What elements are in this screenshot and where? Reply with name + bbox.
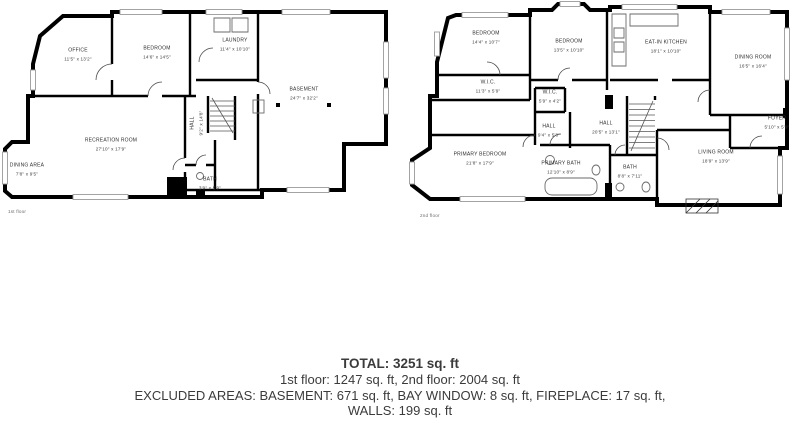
room-label-dining-area: DINING AREA 7'8" x 9'5" (10, 163, 44, 178)
room-dims: 16'5" x 16'4" (735, 62, 772, 69)
floor1-window-4 (384, 42, 389, 78)
room-name: FOYER (764, 116, 789, 124)
floor-areas-text: 1st floor: 1247 sq. ft, 2nd floor: 2004 … (0, 372, 800, 388)
room-label-hall-f1: HALL 9'2" x 14'8" (190, 110, 205, 135)
floor2-outer-walls (412, 4, 787, 205)
floor1-tag: 1st floor (8, 209, 26, 214)
floor2-window-2 (560, 2, 580, 7)
room-name: PRIMARY BEDROOM (454, 152, 507, 160)
room-name: HALL (592, 121, 620, 129)
floor2-window-6 (778, 156, 783, 194)
floor2-window-4 (722, 10, 770, 15)
floor1-window-7 (73, 195, 128, 200)
room-name: EAT-IN KITCHEN (645, 40, 687, 48)
room-dims: 5'10" x 5'9" (764, 123, 789, 130)
floor1-chimney (167, 177, 187, 195)
floorplan-page: OFFICE 11'5" x 13'2" BEDROOM 14'6" x 14'… (0, 0, 800, 428)
room-name: DINING ROOM (735, 55, 772, 63)
floor2-window-5 (785, 28, 790, 80)
room-label-living-room: LIVING ROOM 18'9" x 13'9" (698, 150, 734, 165)
floor2-wall-block-3 (605, 95, 613, 109)
floor2-window-3 (622, 5, 677, 10)
room-dims: 9'4" x 5'8" (538, 131, 560, 138)
floor1-window-9 (31, 70, 36, 90)
room-dims: 13'5" x 10'10" (554, 46, 585, 53)
floor2-window-7 (410, 162, 415, 184)
floor2-window-1 (462, 13, 508, 18)
room-label-basement: BASEMENT 24'7" x 32'2" (289, 87, 318, 102)
room-dims: 9'2" x 14'8" (197, 110, 204, 135)
floor2-window-9 (435, 32, 440, 56)
room-name: LIVING ROOM (698, 150, 734, 158)
room-name: RECREATION ROOM (85, 138, 137, 146)
room-name: LAUNDRY (220, 38, 250, 46)
room-dims: 14'4" x 10'7" (472, 38, 500, 45)
room-dims: 12'10" x 8'9" (541, 168, 580, 175)
room-name: HALL (538, 124, 560, 132)
room-dims: 14'6" x 14'5" (143, 53, 171, 60)
room-name: BEDROOM (554, 39, 585, 47)
floor1-window-6 (3, 152, 8, 184)
room-name: DINING AREA (10, 163, 44, 171)
room-label-recreation-room: RECREATION ROOM 27'10" x 17'9" (85, 138, 137, 153)
total-area-text: TOTAL: 3251 sq. ft (0, 356, 800, 372)
room-name: W.I.C. (539, 90, 561, 98)
room-label-bedroom1-f2: BEDROOM 14'4" x 10'7" (472, 31, 500, 46)
room-dims: 20'5" x 13'1" (592, 128, 620, 135)
floor1-post-2 (327, 103, 331, 107)
room-dims: 3'9" x 5'9" (199, 184, 221, 191)
floor2-wall-block-1 (605, 183, 612, 199)
floor1-window-2 (206, 10, 242, 15)
floor1-window-8 (287, 188, 329, 193)
room-label-bath-f1: BATH 3'9" x 5'9" (199, 177, 221, 192)
room-dims: 5'9" x 4'2" (539, 97, 561, 104)
room-dims: 18'9" x 13'9" (698, 157, 734, 164)
room-name: HALL (190, 110, 198, 135)
floor1-window-1 (120, 10, 162, 15)
floor1-window-3 (282, 10, 330, 15)
room-name: BEDROOM (472, 31, 500, 39)
room-dims: 7'8" x 9'5" (10, 170, 44, 177)
room-dims: 21'8" x 17'9" (454, 159, 507, 166)
room-dims: 18'1" x 10'10" (645, 47, 687, 54)
room-name: BASEMENT (289, 87, 318, 95)
room-label-dining-room: DINING ROOM 16'5" x 16'4" (735, 55, 772, 70)
room-label-foyer: FOYER 5'10" x 5'9" (764, 116, 789, 131)
room-label-bedroom2-f2: BEDROOM 13'5" x 10'10" (554, 39, 585, 54)
room-name: BATH (618, 165, 643, 173)
room-label-primary-bath: PRIMARY BATH 12'10" x 8'9" (541, 161, 580, 176)
room-label-laundry: LAUNDRY 11'4" x 10'10" (220, 38, 250, 53)
room-dims: 24'7" x 32'2" (289, 94, 318, 101)
room-dims: 11'5" x 13'2" (64, 55, 91, 62)
room-label-primary-bedroom: PRIMARY BEDROOM 21'8" x 17'9" (454, 152, 507, 167)
room-label-wic-1: W.I.C. 11'3" x 5'9" (476, 80, 501, 95)
floor2-plan-drawing (400, 0, 800, 228)
room-label-office: OFFICE 11'5" x 13'2" (64, 48, 91, 63)
room-dims: 27'10" x 17'9" (85, 145, 137, 152)
room-name: BATH (199, 177, 221, 185)
floor1-post-1 (276, 103, 280, 107)
room-label-hall2-f2: HALL 20'5" x 13'1" (592, 121, 620, 136)
excluded-areas-text-1: EXCLUDED AREAS: BASEMENT: 671 sq. ft, BA… (0, 388, 800, 404)
floor1-window-5 (384, 88, 389, 114)
room-label-bedroom-f1: BEDROOM 14'6" x 14'5" (143, 46, 171, 61)
area-summary: TOTAL: 3251 sq. ft 1st floor: 1247 sq. f… (0, 356, 800, 428)
room-label-eat-in-kitchen: EAT-IN KITCHEN 18'1" x 10'10" (645, 40, 687, 55)
room-label-wic-2: W.I.C. 5'9" x 4'2" (539, 90, 561, 105)
room-name: PRIMARY BATH (541, 161, 580, 169)
room-label-bath-f2: BATH 8'8" x 7'11" (618, 165, 643, 180)
room-label-hall1-f2: HALL 9'4" x 5'8" (538, 124, 560, 139)
room-dims: 8'8" x 7'11" (618, 172, 643, 179)
room-dims: 11'3" x 5'9" (476, 87, 501, 94)
room-name: W.I.C. (476, 80, 501, 88)
room-dims: 11'4" x 10'10" (220, 45, 250, 52)
floor2-tag: 2nd floor (420, 213, 440, 218)
excluded-areas-text-2: WALLS: 199 sq. ft (0, 403, 800, 419)
room-name: OFFICE (64, 48, 91, 56)
room-name: BEDROOM (143, 46, 171, 54)
floor2-window-8 (460, 197, 525, 202)
